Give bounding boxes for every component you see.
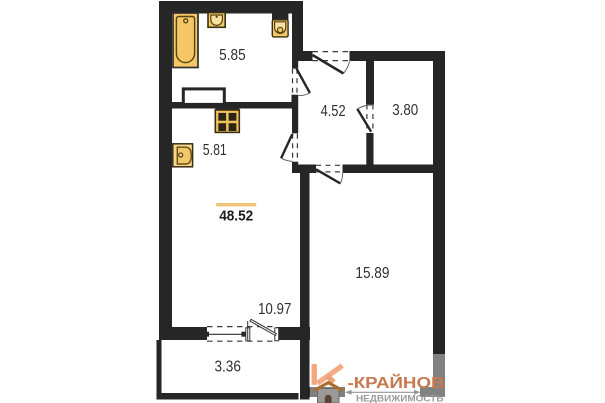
svg-text:15.89: 15.89 bbox=[355, 265, 389, 282]
svg-text:4.52: 4.52 bbox=[321, 103, 346, 120]
svg-text:3.80: 3.80 bbox=[392, 102, 418, 119]
svg-text:-КРАЙНОВ: -КРАЙНОВ bbox=[348, 373, 445, 392]
svg-text:5.81: 5.81 bbox=[203, 142, 227, 159]
svg-text:10.97: 10.97 bbox=[258, 301, 292, 318]
svg-text:5.85: 5.85 bbox=[219, 47, 246, 64]
svg-text:48.52: 48.52 bbox=[219, 208, 253, 225]
svg-text:3.36: 3.36 bbox=[214, 358, 241, 375]
svg-text:НЕДВИЖИМОСТЬ: НЕДВИЖИМОСТЬ bbox=[356, 393, 444, 403]
